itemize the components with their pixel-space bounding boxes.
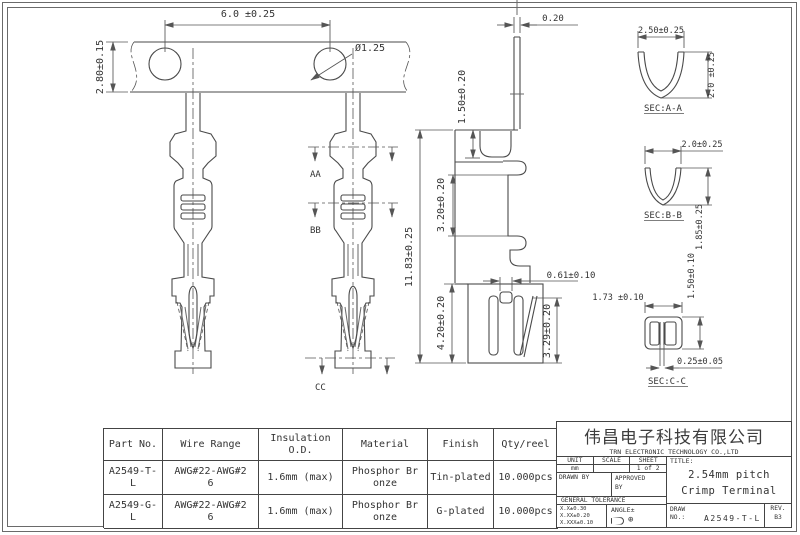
dim-pitch: 6.0 ±0.25 (165, 9, 330, 52)
cell-finish: Tin-plated (428, 461, 494, 495)
drawing-sheet: 6.0 ±0.25 2.80±0.15 Ø1.25 AA BB CC (0, 0, 800, 535)
dim-strip-width: 2.80±0.15 (95, 40, 128, 94)
cell-wire-range: AWG#22-AWG#26 (163, 461, 259, 495)
terminal-front-view-1 (170, 48, 216, 374)
dim-secBB-height: 1.85±0.25 (695, 204, 705, 250)
terminal-front-view-2 (330, 48, 376, 374)
col-header-part-no: Part No. (104, 429, 163, 461)
dim-thickness-text: 0.20 (542, 14, 564, 24)
break-line-right (404, 42, 410, 92)
cell-insulation-od: 1.6mm (max) (259, 461, 343, 495)
projection-symbols: ⊕ (611, 516, 666, 525)
section-mark-AA-text: AA (310, 170, 321, 180)
dim-overall-length: 11.83±0.25 (404, 130, 466, 363)
unit-scale-sheet-values: mm 1 of 2 (557, 465, 666, 473)
rev-cell: REV. B3 (764, 504, 791, 527)
company-name-cn: 伟昌电子科技有限公司 (557, 422, 791, 448)
cell-qty-reel: 10.000pcs (494, 495, 558, 529)
section-view-AA-label: SEC:A-A (644, 104, 683, 114)
tolerance-values: X.X±0.30 X.XX±0.20 X.XXX±0.10 (557, 505, 607, 527)
dim-hole-dia-text: Ø1.25 (355, 42, 385, 54)
company-name-en: TRN ELECTRONIC TECHNOLOGY CO.,LTD (557, 448, 791, 457)
section-mark-CC: CC (305, 358, 395, 393)
break-line-left (131, 42, 137, 92)
cell-material: Phosphor Bronze (343, 495, 428, 529)
title-block-left: UNIT SCALE SHEET mm 1 of 2 DRAWN BY APPR… (557, 457, 667, 527)
col-header-wire-range: Wire Range (163, 429, 259, 461)
scale-label: SCALE (594, 457, 631, 464)
dim-slot-width: 0.61±0.10 (483, 271, 595, 291)
cell-finish: G-plated (428, 495, 494, 529)
cell-part-no: A2549-G-L (104, 495, 163, 529)
cell-material: Phosphor Bronze (343, 461, 428, 495)
dim-secAA-width: 2.50±0.25 (638, 26, 684, 36)
dim-pitch-text: 6.0 ±0.25 (221, 9, 275, 20)
section-view-CC-label: SEC:C-C (648, 377, 686, 387)
unit-scale-sheet-labels: UNIT SCALE SHEET (557, 457, 666, 465)
rev-label: REV. (770, 505, 785, 514)
dim-strip-width-text: 2.80±0.15 (95, 40, 106, 94)
third-angle-projection-icon (611, 517, 624, 525)
col-header-material: Material (343, 429, 428, 461)
section-view-AA: 2.50±0.25 2.0 ±0.25 SEC:A-A (638, 26, 717, 114)
drawn-by-label: DRAWN BY (557, 473, 612, 496)
dim-hole-dia: Ø1.25 (311, 42, 385, 80)
col-header-qty-reel: Qty/reel (494, 429, 558, 461)
unit-value: mm (557, 465, 594, 472)
draw-no-label: DRAW NO.: (667, 504, 704, 527)
cell-qty-reel: 10.000pcs (494, 461, 558, 495)
section-view-BB-label: SEC:B-B (644, 211, 682, 221)
pilot-hole (149, 48, 181, 80)
drawing-title: 2.54mm pitch Crimp Terminal (667, 465, 791, 503)
terminal-side-view (455, 37, 543, 363)
section-view-CC: 1.73 ±0.10 1.50±0.10 0.25±0.05 SEC:C-C (592, 253, 723, 387)
angle-tolerance-cell: ANGLE± ⊕ (607, 505, 666, 527)
dim-box-height: 3.20±0.20 (436, 175, 508, 236)
dim-crimp-length: 4.20±0.20 (436, 284, 466, 363)
dim-secCC-height: 1.50±0.10 (687, 253, 697, 299)
dim-secCC-gap: 0.25±0.05 (677, 357, 723, 367)
col-header-finish: Finish (428, 429, 494, 461)
title-label: TITLE: (667, 457, 791, 465)
parts-table: Part No. Wire Range Insulation O.D. Mate… (103, 428, 557, 528)
tolerance-xxx: X.XXX±0.10 (560, 520, 606, 527)
title-block-right: TITLE: 2.54mm pitch Crimp Terminal DRAW … (667, 457, 791, 527)
dim-box-height-text: 3.20±0.20 (436, 178, 447, 232)
dim-secBB-width: 2.0±0.25 (682, 140, 723, 150)
tolerance-x: X.X±0.30 (560, 506, 606, 513)
contact-tab (480, 131, 511, 157)
sheet-value: 1 of 2 (630, 465, 666, 472)
dim-wing-height: 3.29±0.20 (533, 298, 562, 363)
angle-label: ANGLE± (611, 506, 666, 514)
sheet-label: SHEET (630, 457, 666, 464)
section-mark-BB-text: BB (310, 226, 321, 236)
title-block: 伟昌电子科技有限公司 TRN ELECTRONIC TECHNOLOGY CO.… (556, 421, 792, 528)
dim-slot-width-text: 0.61±0.10 (547, 271, 596, 281)
section-view-BB: 2.0±0.25 1.85±0.25 SEC:B-B (644, 140, 723, 250)
general-tolerance-label: GENERAL TOLERANCE (557, 497, 666, 505)
rev-value: B3 (774, 514, 782, 523)
dim-secCC-width: 1.73 ±0.10 (592, 293, 643, 303)
cell-wire-range: AWG#22-AWG#26 (163, 495, 259, 529)
dim-tab-height-text: 1.50±0.20 (457, 70, 468, 124)
tolerance-xx: X.XX±0.20 (560, 513, 606, 520)
col-header-insulation-od: Insulation O.D. (259, 429, 343, 461)
section-mark-CC-text: CC (315, 383, 326, 393)
dim-wing-height-text: 3.29±0.20 (542, 304, 553, 358)
insulation-crimp (468, 284, 543, 363)
draw-no-value: A2549-T-L (704, 504, 764, 527)
dim-secAA-height: 2.0 ±0.25 (707, 52, 717, 98)
unit-label: UNIT (557, 457, 594, 464)
dim-tab-height: 1.50±0.20 (457, 70, 480, 158)
approved-by-label: APPROVED BY (612, 473, 666, 496)
cell-part-no: A2549-T-L (104, 461, 163, 495)
dim-thickness: 0.20 (497, 14, 578, 33)
projection-circle-icon: ⊕ (628, 516, 633, 525)
dim-crimp-length-text: 4.20±0.20 (436, 296, 447, 350)
cell-insulation-od: 1.6mm (max) (259, 495, 343, 529)
scale-value (594, 465, 631, 472)
dim-overall-length-text: 11.83±0.25 (404, 227, 415, 287)
